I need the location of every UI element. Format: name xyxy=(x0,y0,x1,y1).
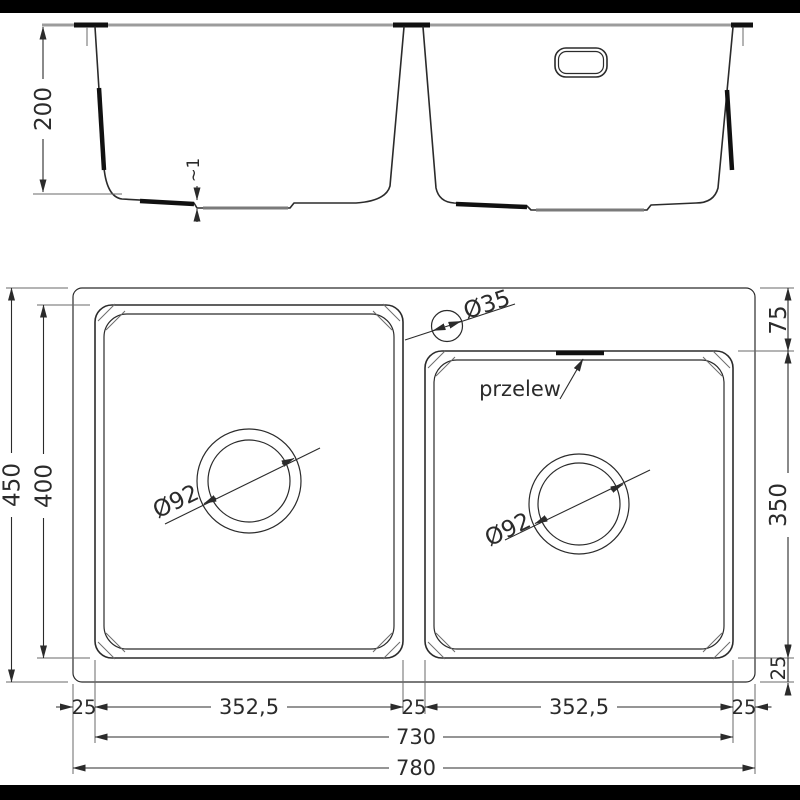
drawing-canvas: 200 ~1 xyxy=(0,0,800,800)
right-drain: Ø92 xyxy=(481,454,650,554)
right-bowl-profile xyxy=(423,27,733,210)
dim-overall-width-780: 780 xyxy=(73,756,755,780)
left-bowl-depth-label: 400 xyxy=(32,464,58,508)
depth-dim-label: 200 xyxy=(31,87,57,131)
left-bowl-plan: Ø92 xyxy=(95,304,403,659)
right-bottom-offset-label: 25 xyxy=(767,656,790,681)
dim-right-bottom-offset-25: 25 xyxy=(760,646,794,694)
dim-row-bowl-widths: 25 352,5 25 352,5 25 xyxy=(56,695,772,719)
outer-rim-rect xyxy=(73,288,755,682)
overflow-label: przelew xyxy=(479,377,561,401)
left-drain: Ø92 xyxy=(149,429,320,533)
left-drain-outer-circle xyxy=(197,429,301,533)
left-drain-dim-label: Ø92 xyxy=(149,480,203,524)
top-black-bar xyxy=(0,0,800,13)
dim-depth-200: 200 xyxy=(30,27,122,194)
overflow-leader xyxy=(560,359,583,399)
overall-width-label: 780 xyxy=(396,756,436,780)
right-wall-weld xyxy=(727,90,732,170)
elevation-view: 200 ~1 xyxy=(30,25,753,222)
center-divider-label: 25 xyxy=(402,696,427,719)
overall-depth-label: 450 xyxy=(0,463,26,507)
left-wall-weld xyxy=(99,88,104,170)
right-drain-dim-label: Ø92 xyxy=(481,508,535,552)
right-bottom-weld xyxy=(456,204,527,207)
left-bottom-weld xyxy=(140,201,194,204)
dim-bowls-span-730: 730 xyxy=(95,725,733,749)
dim-right-top-offset-75: 75 xyxy=(738,288,794,351)
left-bowl-inner xyxy=(104,314,394,649)
plan-view: Ø92 Ø92 xyxy=(0,285,794,780)
left-bowl-profile xyxy=(95,27,404,208)
right-bowl-plan: Ø92 przelew xyxy=(425,351,733,659)
dim-left-bowl-depth-400: 400 xyxy=(31,305,91,658)
dim-bottom-step: ~1 xyxy=(184,158,203,222)
right-bowl-depth-label: 350 xyxy=(766,483,792,527)
left-bowl-corner-chamfers xyxy=(98,304,400,659)
faucet-hole: Ø35 xyxy=(405,285,515,341)
right-bowl-corner-chamfers xyxy=(428,351,730,659)
right-margin-label: 25 xyxy=(732,696,757,719)
sink-technical-drawing: 200 ~1 xyxy=(0,0,800,800)
bottom-step-label: ~1 xyxy=(184,158,203,182)
right-bowl-width-label: 352,5 xyxy=(549,695,609,719)
overflow-opening-front xyxy=(555,48,607,77)
dim-right-bowl-depth-350: 350 xyxy=(738,351,794,658)
bowls-span-label: 730 xyxy=(396,725,436,749)
bottom-black-bar xyxy=(0,785,800,800)
left-margin-label: 25 xyxy=(72,696,97,719)
left-bowl-width-label: 352,5 xyxy=(219,695,279,719)
left-drain-inner-circle xyxy=(208,440,290,522)
right-top-offset-label: 75 xyxy=(766,305,792,334)
left-bowl-outer xyxy=(95,305,403,658)
overflow-inner xyxy=(559,52,604,74)
faucet-hole-dim-label: Ø35 xyxy=(460,285,513,324)
